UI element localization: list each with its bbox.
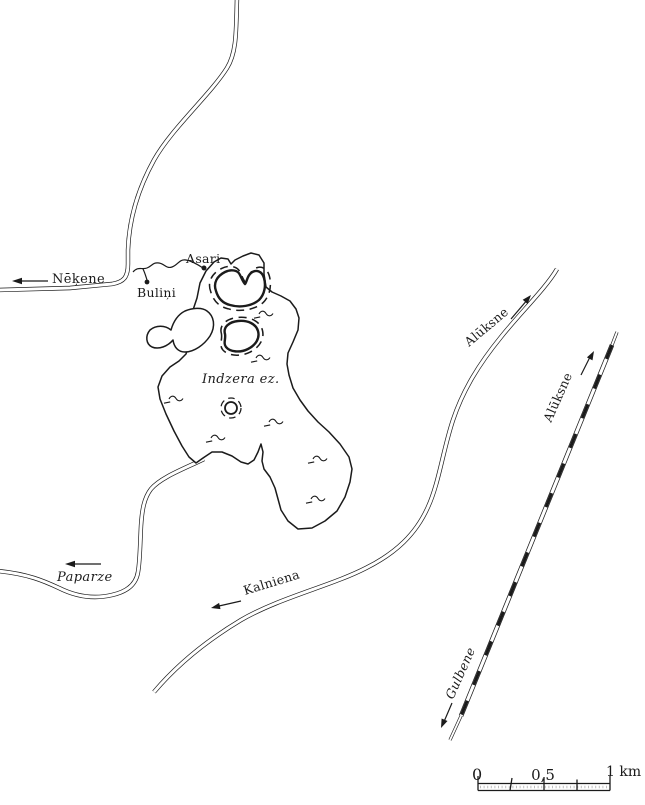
island-north: [215, 270, 265, 306]
scale-bar: 0 0,5 1 km: [472, 764, 641, 791]
label-lake: Indzera ez.: [201, 372, 280, 387]
label-bulini: Buliņi: [137, 285, 176, 300]
road-nekene: [0, 0, 237, 290]
island-small: [225, 402, 237, 414]
label-asari: Asari: [185, 251, 220, 266]
lake-indzera: [147, 253, 352, 529]
map-canvas: Nēķene Buliņi Asari Indzera ez. Paparze …: [0, 0, 645, 805]
label-nekene: Nēķene: [52, 272, 105, 287]
scale-half: 0,5: [531, 766, 555, 784]
scale-one-km: 1 km: [606, 764, 641, 780]
railway-gulbene-aluksne: [450, 332, 617, 740]
arrow-paparze: [65, 561, 101, 567]
island-middle: [225, 321, 259, 352]
settlement-dot-bulini: [145, 280, 150, 285]
label-aluksne-road: Alūksne: [461, 304, 512, 350]
arrow-aluksne-rail: [581, 351, 594, 375]
scale-zero: 0: [472, 765, 482, 784]
arrow-kalniena: [211, 601, 241, 609]
arrow-nekene: [12, 278, 48, 284]
label-aluksne-rail: Alūksne: [540, 370, 576, 425]
arrow-gulbene: [441, 703, 452, 728]
label-paparze: Paparze: [56, 570, 113, 585]
settlement-dot-asari: [202, 266, 207, 271]
label-kalniena: Kalniena: [241, 566, 301, 597]
map-figure: Nēķene Buliņi Asari Indzera ez. Paparze …: [0, 0, 645, 805]
